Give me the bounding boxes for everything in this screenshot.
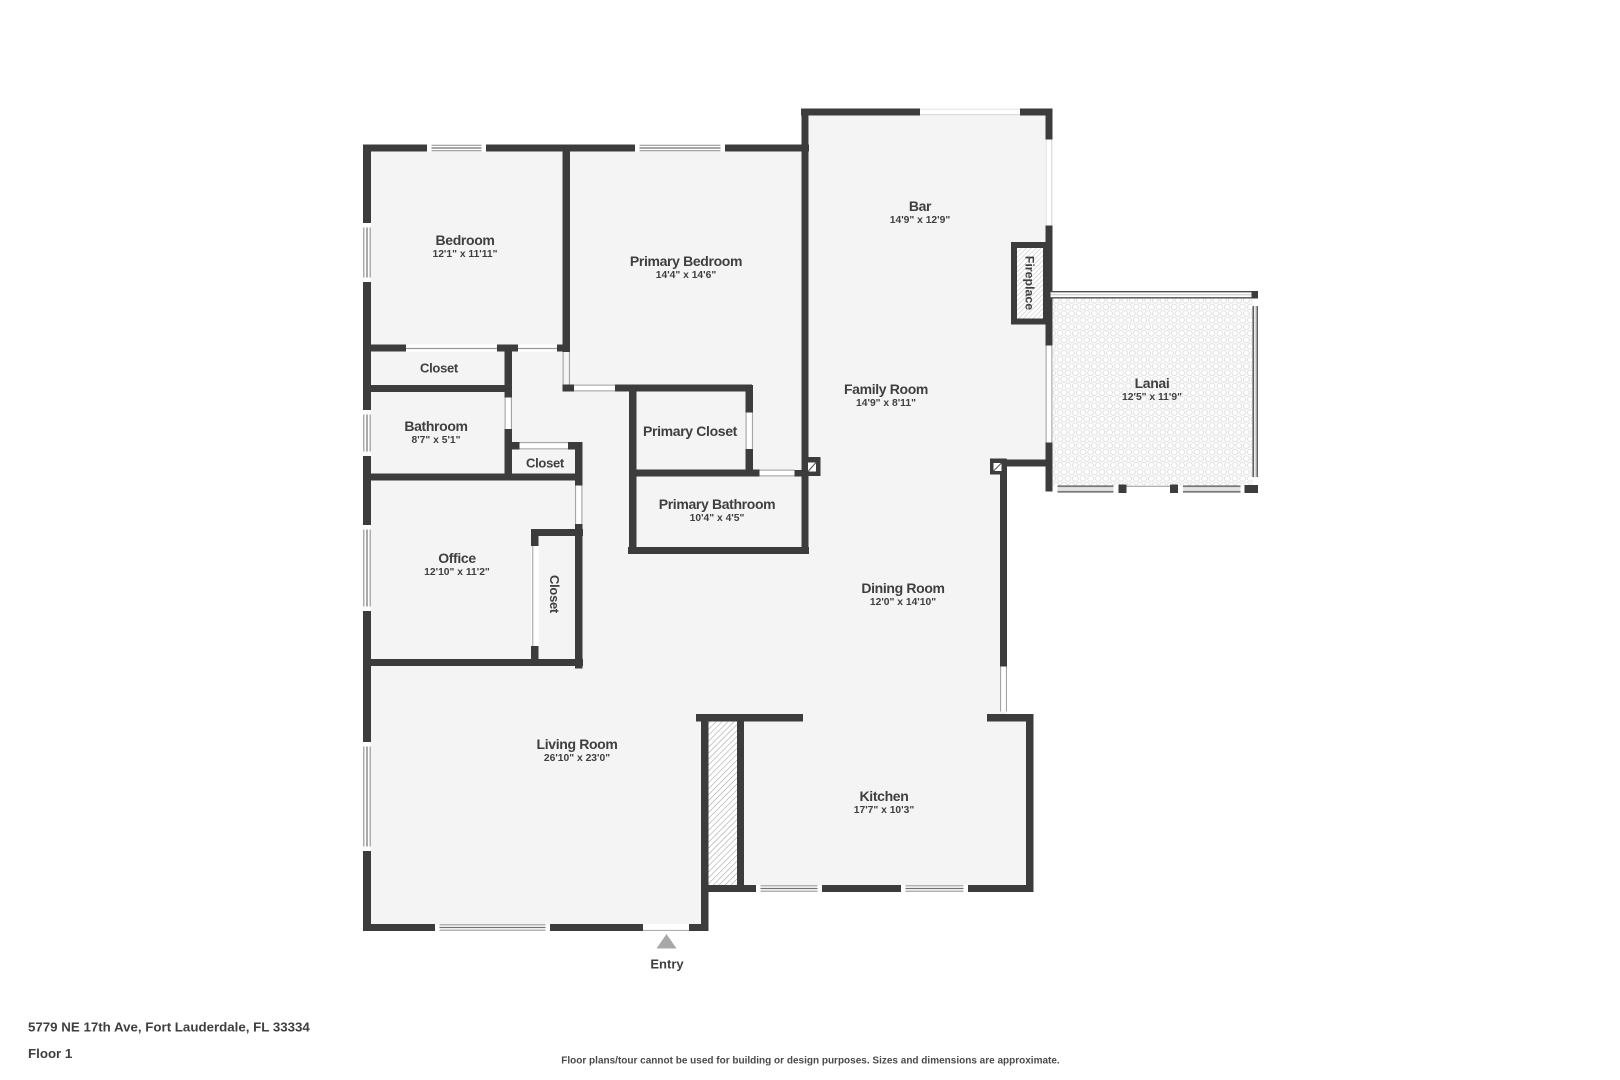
svg-text:12'1" x 11'11": 12'1" x 11'11" <box>432 249 497 260</box>
svg-text:26'10" x 23'0": 26'10" x 23'0" <box>544 753 610 764</box>
svg-text:14'9" x 8'11": 14'9" x 8'11" <box>856 398 916 409</box>
svg-text:Kitchen: Kitchen <box>860 788 909 804</box>
svg-text:12'5" x 11'9": 12'5" x 11'9" <box>1122 392 1182 403</box>
svg-text:Primary Bedroom: Primary Bedroom <box>630 253 742 269</box>
svg-text:10'4" x 4'5": 10'4" x 4'5" <box>690 513 745 524</box>
svg-text:Primary Bathroom: Primary Bathroom <box>659 496 776 512</box>
svg-text:Dining Room: Dining Room <box>861 580 944 596</box>
svg-text:Bar: Bar <box>909 198 932 214</box>
svg-text:12'0" x 14'10": 12'0" x 14'10" <box>870 597 936 608</box>
svg-text:5779 NE 17th Ave, Fort Lauderd: 5779 NE 17th Ave, Fort Lauderdale, FL 33… <box>28 1020 310 1035</box>
svg-text:14'9" x 12'9": 14'9" x 12'9" <box>890 215 951 226</box>
svg-text:Closet: Closet <box>420 361 459 376</box>
svg-text:Primary Closet: Primary Closet <box>643 423 738 439</box>
svg-text:12'10" x 11'2": 12'10" x 11'2" <box>424 567 490 578</box>
svg-text:Office: Office <box>438 550 476 566</box>
svg-text:Entry: Entry <box>650 957 684 972</box>
svg-text:Lanai: Lanai <box>1135 375 1170 391</box>
svg-text:Fireplace: Fireplace <box>1023 256 1037 311</box>
svg-text:8'7" x 5'1": 8'7" x 5'1" <box>411 435 460 446</box>
svg-text:Closet: Closet <box>547 575 562 614</box>
svg-text:Floor 1: Floor 1 <box>28 1046 73 1061</box>
svg-text:17'7" x 10'3": 17'7" x 10'3" <box>854 805 915 816</box>
svg-text:Bathroom: Bathroom <box>404 418 467 434</box>
svg-text:14'4" x 14'6": 14'4" x 14'6" <box>656 270 717 281</box>
svg-text:Bedroom: Bedroom <box>436 232 495 248</box>
svg-text:Living Room: Living Room <box>537 736 618 752</box>
svg-text:Family Room: Family Room <box>844 381 928 397</box>
svg-text:Closet: Closet <box>526 456 565 471</box>
svg-text:Floor plans/tour cannot be use: Floor plans/tour cannot be used for buil… <box>561 1056 1060 1067</box>
